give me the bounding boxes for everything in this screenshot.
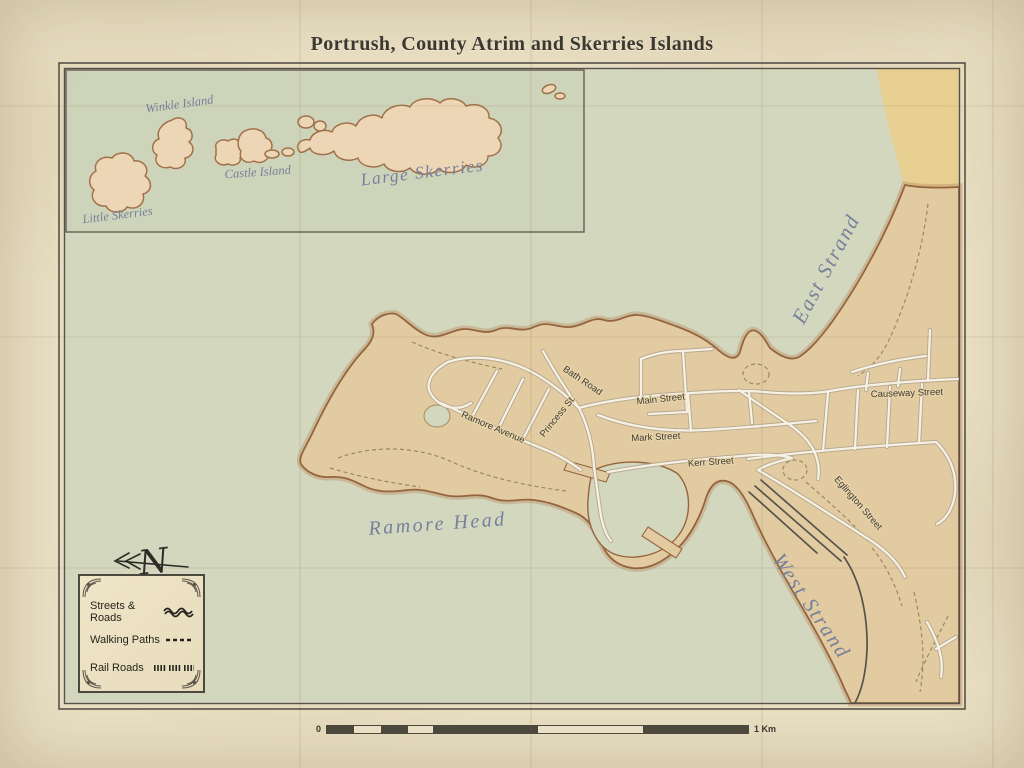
legend-item-paths: Walking Paths [90, 626, 195, 654]
scale-start-label: 0 [316, 724, 321, 734]
legend-corner-ornament-icon [82, 578, 102, 598]
map-title: Portrush, County Atrim and Skerries Isla… [0, 33, 1024, 56]
scale-bar-segments [326, 725, 749, 734]
dashed-line-icon [165, 637, 195, 643]
legend-label: Streets & Roads [90, 600, 163, 624]
legend-corner-ornament-icon [181, 578, 201, 598]
map-page: { "title": "Portrush, County Atrim and S… [0, 0, 1024, 768]
legend-box: Streets & Roads Walking Paths Rail Roads [78, 574, 205, 693]
scale-end-label: 1 Km [754, 724, 776, 734]
legend-item-rail: Rail Roads [90, 654, 195, 682]
scale-bar: 0 1 Km [316, 724, 776, 734]
wavy-line-icon [163, 606, 195, 619]
legend-label: Rail Roads [90, 662, 144, 674]
legend-item-streets: Streets & Roads [90, 598, 195, 626]
railroad-ticks-icon [153, 664, 195, 672]
island-little-skerries [90, 153, 151, 212]
inset-map: Winkle Island Castle Island Large Skerri… [66, 70, 584, 232]
legend-label: Walking Paths [90, 634, 160, 646]
